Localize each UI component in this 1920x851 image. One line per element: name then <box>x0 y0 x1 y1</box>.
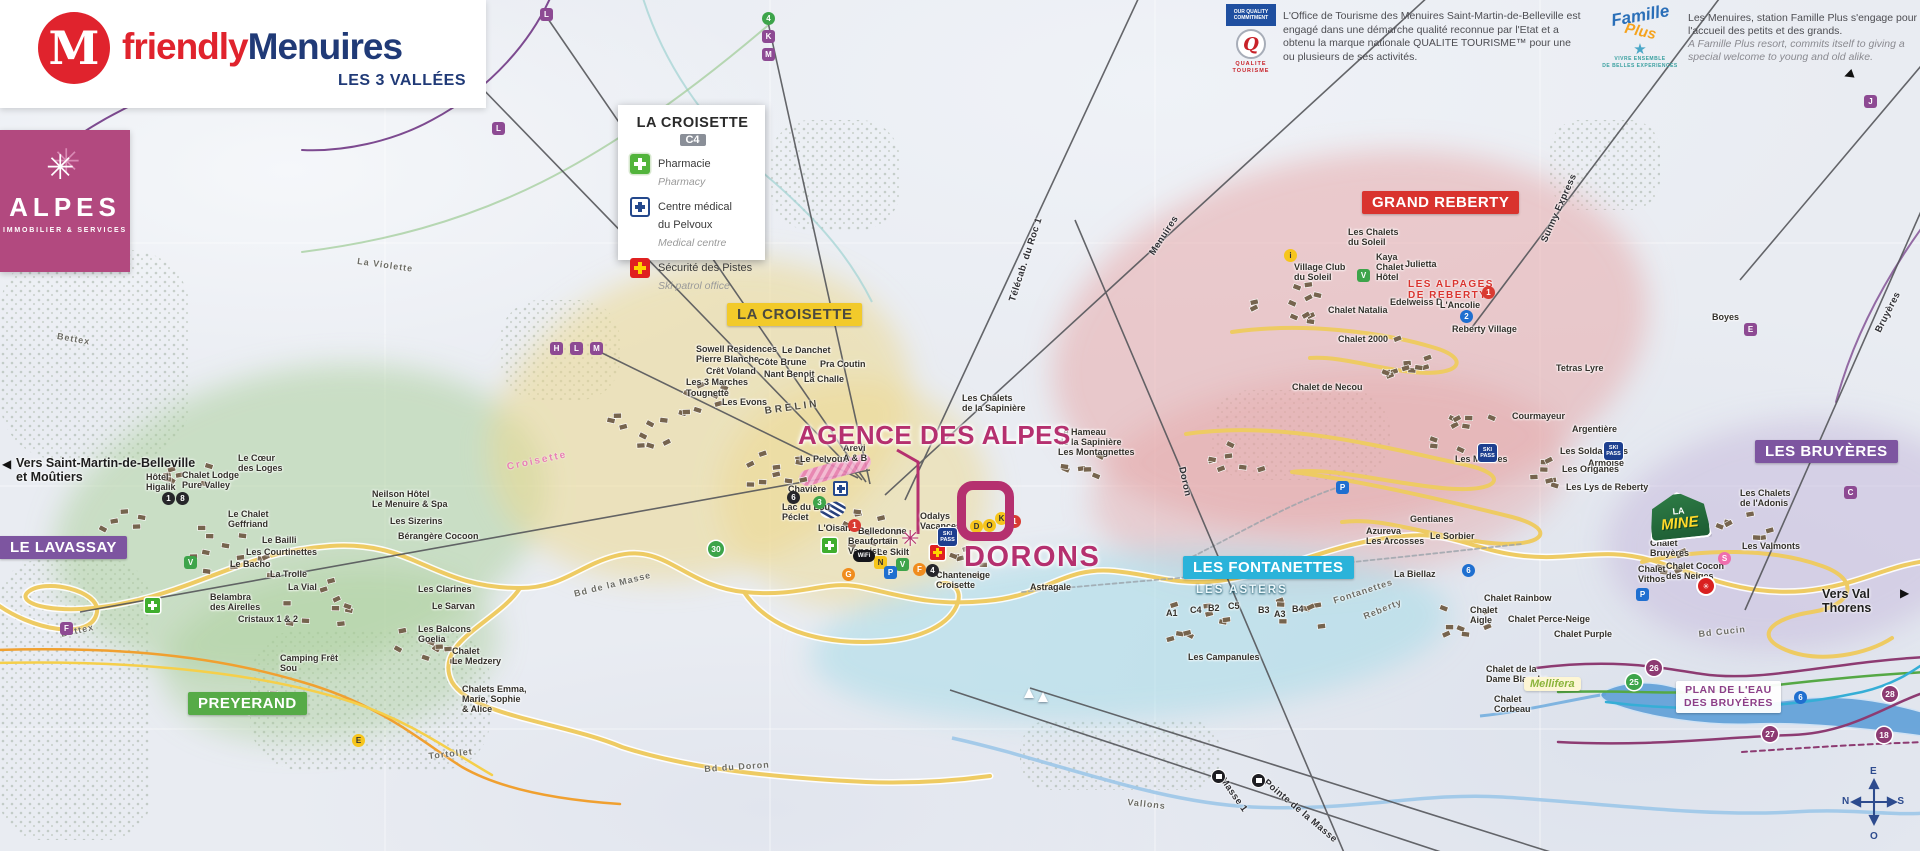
legend-label-fr: Pharmacie <box>658 158 711 170</box>
map-label: Chalet Lodge Pure Valley <box>182 470 239 490</box>
map-badge-18: 18 <box>1876 727 1892 743</box>
map-label: Chalet Natalia <box>1328 305 1388 315</box>
map-label: Le Cœur des Loges <box>238 453 283 473</box>
map-label: Tetras Lyre <box>1556 363 1604 373</box>
map-badge-j: J <box>1864 95 1877 108</box>
map-label: Chalet 2000 <box>1338 334 1388 344</box>
map-badge-28: 28 <box>1882 686 1898 702</box>
map-badge-27: 27 <box>1762 726 1778 742</box>
target-icon: ✳ <box>1698 578 1714 594</box>
map-label: C5 <box>1228 601 1240 611</box>
snowflake-marker-icon: ✳ <box>901 526 919 552</box>
brand-name: friendlyMenuires <box>122 26 402 68</box>
pharmacy-cross-icon <box>630 154 650 174</box>
map-label: Bettex <box>56 331 91 347</box>
compass-west: O <box>1870 831 1878 842</box>
ski-res ort-map: ◀Vers Saint-Martin-de-Belleville et Moût… <box>0 0 1920 851</box>
map-label: Les Evons <box>722 397 767 407</box>
map-badge-3: 3 <box>813 496 826 509</box>
skipass-icon: SKI PASS <box>938 528 957 546</box>
legend-label-en: Ski patrol office <box>658 280 730 292</box>
map-label: Bérangère Cocoon <box>398 531 479 541</box>
map-badge-6: 6 <box>1462 564 1475 577</box>
gondola-icon <box>1252 774 1265 787</box>
map-label: Chalet Purple <box>1554 629 1612 639</box>
map-badge-f: F <box>913 563 926 576</box>
map-label: Les 3 Marches <box>686 377 748 387</box>
map-badge-v: V <box>896 558 909 571</box>
boat-icon <box>1024 688 1034 698</box>
map-label: Kaya Chalet Hôtel <box>1376 252 1404 282</box>
map-label: Fontanettes <box>1332 577 1394 606</box>
ski-patrol-cross-icon <box>630 258 650 278</box>
map-badge-m: M <box>762 48 775 61</box>
map-label: Tortollet <box>428 746 473 761</box>
map-label: Le Sarvan <box>432 601 475 611</box>
map-label: Les Balcons Goelia <box>418 624 471 644</box>
map-label: Le Bacho <box>230 559 271 569</box>
famille-plus-text-en: A Famille Plus resort, commits itself to… <box>1688 38 1905 63</box>
map-badge-8: 8 <box>176 492 189 505</box>
famille-plus-text-fr: Les Menuires, station Famille Plus s'eng… <box>1688 12 1917 37</box>
map-label: Julietta <box>1405 259 1437 269</box>
map-label: Les Courtinettes <box>246 547 317 557</box>
map-badge-4: 4 <box>926 564 939 577</box>
zone-badge-le-lavassay: LE LAVASSAY <box>0 536 127 559</box>
map-label: B2 <box>1208 603 1220 613</box>
brand-name-menuires: Menuires <box>248 26 402 67</box>
legend-label-en: Pharmacy <box>658 176 705 188</box>
map-label: Les Lys de Reberty <box>1566 482 1648 492</box>
map-label: ◀ <box>1842 67 1855 83</box>
map-label: Les Origanes <box>1562 464 1619 474</box>
map-label: Pra Coutin <box>820 359 866 369</box>
map-label: Les Valmonts <box>1742 541 1800 551</box>
cross-patrol-icon <box>930 545 945 560</box>
map-badge-6: 6 <box>1794 691 1807 704</box>
map-label: Cristaux 1 & 2 <box>238 614 298 624</box>
qualite-tourisme-logo: OUR QUALITY COMMITMENT Q QUALITE TOURISM… <box>1225 4 1277 82</box>
map-badge-25: 25 <box>1626 674 1642 690</box>
skipass-icon: SKI PASS <box>1604 442 1623 460</box>
map-label: Argentière <box>1572 424 1617 434</box>
qualite-tourisme-icon: Q <box>1236 29 1266 59</box>
map-label: La Vial <box>288 582 317 592</box>
map-label: Astragale <box>1030 582 1071 592</box>
zone-badge-les-bruyeres: LES BRUYÈRES <box>1755 440 1898 463</box>
legend-grid-ref: C4 <box>680 134 706 146</box>
alpes-title: ALPES <box>9 192 121 223</box>
map-label: Télécab. du Roc 1 <box>1008 217 1045 304</box>
map-label: Reberty <box>1362 597 1403 622</box>
map-label: Camping Frêt Sou <box>280 653 338 673</box>
famille-plus-text: Les Menuires, station Famille Plus s'eng… <box>1688 12 1920 65</box>
qualite-tourisme-text: L'Office de Tourisme des Menuires Saint-… <box>1283 10 1583 65</box>
zone-badge-preyerand: PREYERAND <box>188 692 307 715</box>
cross-green-icon <box>822 538 837 553</box>
map-label: Sunny Express <box>1540 173 1580 245</box>
map-label: Edelweiss D <box>1390 297 1443 307</box>
map-label: Le Danchet <box>782 345 831 355</box>
map-label: C4 <box>1190 605 1202 615</box>
map-badge-h: H <box>550 342 563 355</box>
map-badge-4: 4 <box>762 12 775 25</box>
map-badge-p: P <box>884 566 897 579</box>
map-label: Le Sorbier <box>1430 531 1475 541</box>
map-label: Boyes <box>1712 312 1739 322</box>
map-label: B3 <box>1258 605 1270 615</box>
map-label: Chalet Le Medzery <box>452 646 501 666</box>
map-label: Le Pelvoux <box>800 454 848 464</box>
map-label: Courmayeur <box>1512 411 1565 421</box>
zone-badge-la-croisette: LA CROISETTE <box>727 303 862 326</box>
map-label: Les Sizerins <box>390 516 443 526</box>
brand-subtitle: LES 3 VALLÉES <box>338 72 466 90</box>
map-label: Le Bailli <box>262 535 297 545</box>
cross-green-icon <box>145 598 160 613</box>
legend-label-fr: Sécurité des Pistes <box>658 262 752 274</box>
map-label: ▶ <box>1900 587 1909 600</box>
wifi-icon: WiFi <box>853 550 875 562</box>
map-label: BRELIN <box>764 398 820 417</box>
map-label: Vallons <box>1127 797 1166 811</box>
map-label: La Trolle <box>270 569 307 579</box>
agency-location-marker <box>957 481 1014 541</box>
map-badge-1: 1 <box>848 519 861 532</box>
map-badge-i: i <box>1284 249 1297 262</box>
map-label: Village Club du Soleil <box>1294 262 1345 282</box>
map-badge-26: 26 <box>1646 660 1662 676</box>
medical-cross-icon <box>630 197 650 217</box>
map-badge-f: F <box>60 622 73 635</box>
quality-commitment-badge: OUR QUALITY COMMITMENT <box>1226 4 1276 26</box>
zone-badge-plan-de-leau: PLAN DE L'EAU DES BRUYÈRES <box>1676 681 1781 713</box>
map-label: Bruyères <box>1874 290 1904 334</box>
map-label: Les Clarines <box>418 584 472 594</box>
map-label: Menuires <box>1148 214 1181 257</box>
compass-rose: E N S O <box>1842 766 1906 842</box>
map-badge-v: V <box>1357 269 1370 282</box>
map-label: La Biellaz <box>1394 569 1436 579</box>
brand-monogram-icon: M <box>49 25 100 71</box>
map-label: Chalet Aigle <box>1470 605 1498 625</box>
alpes-star-icon: ✳ ✳ <box>42 140 88 186</box>
map-badge-s: S <box>1718 552 1731 565</box>
map-label: L'Ancolie <box>1440 300 1480 310</box>
map-label: Croisette <box>506 449 568 473</box>
map-label: Azureva Les Arcosses <box>1366 526 1424 546</box>
skipass-icon: SKI PASS <box>1478 444 1497 462</box>
famille-plus-logo: Famille Plus ★ VIVRE ENSEMBLE DE BELLES … <box>1596 6 1684 70</box>
legend-title: LA CROISETTE <box>630 115 755 131</box>
famille-plus-star-icon: ★ <box>1596 44 1684 56</box>
map-label: Le Chalet Geffriand <box>228 509 269 529</box>
gondola-icon <box>1212 770 1225 783</box>
map-label: Doron <box>1176 466 1193 498</box>
legend-item-medical-centre: Centre médical du Pelvoux Medical centre <box>630 197 755 251</box>
map-badge-30: 30 <box>708 541 724 557</box>
alpes-subtitle: IMMOBILIER & SERVICES <box>3 227 127 234</box>
map-badge-p: P <box>1636 588 1649 601</box>
brand-header: M friendlyMenuires LES 3 VALLÉES <box>0 0 486 108</box>
cross-blue-icon <box>833 481 848 496</box>
la-mine-main: MINE <box>1660 514 1699 533</box>
map-label: La Challe <box>804 374 844 384</box>
legend-item-pharmacy: Pharmacie Pharmacy <box>630 154 755 190</box>
mellifera-logo: Mellifera <box>1524 677 1581 691</box>
famille-plus-slogan: VIVRE ENSEMBLE DE BELLES EXPERIENCES <box>1596 56 1684 70</box>
legend-label-en: Medical centre <box>658 237 726 249</box>
map-badge-6: 6 <box>787 491 800 504</box>
map-label: Chalet de Necou <box>1292 382 1363 392</box>
zone-badge-grand-reberty: GRAND REBERTY <box>1362 191 1519 214</box>
compass-arrows-icon <box>1848 776 1900 828</box>
map-badge-p: P <box>1336 481 1349 494</box>
map-label: Pointe de la Masse <box>1261 778 1338 845</box>
map-badge-k: K <box>762 30 775 43</box>
map-label: Crêt Voland <box>706 366 756 376</box>
map-label: B4 <box>1292 604 1304 614</box>
map-legend: LA CROISETTE C4 Pharmacie Pharmacy Centr… <box>618 105 765 260</box>
map-badge-l: L <box>492 122 505 135</box>
map-badge-v: V <box>184 556 197 569</box>
alpes-agency-logo: ✳ ✳ ALPES IMMOBILIER & SERVICES <box>0 130 130 272</box>
district-annotation-dorons: DORONS <box>964 541 1100 574</box>
brand-name-friendly: friendly <box>122 26 248 67</box>
map-label: Belambra des Airelles <box>210 592 260 612</box>
map-label: Chalet Rainbow <box>1484 593 1552 603</box>
map-label: Reberty Village <box>1452 324 1517 334</box>
map-label: Les Chalets de la Sapinière <box>962 393 1026 413</box>
legend-label-fr: Centre médical du Pelvoux <box>658 201 732 231</box>
map-label: Bd Cucin <box>1698 624 1746 639</box>
qualite-tourisme-caption: QUALITE TOURISME <box>1225 61 1277 75</box>
map-label: Bd du Doron <box>704 759 770 774</box>
map-label: A1 <box>1166 608 1178 618</box>
map-label: LES ASTERS <box>1196 584 1288 597</box>
zone-badge-les-fontanettes: LES FONTANETTES <box>1183 556 1354 579</box>
map-badge-e: E <box>1744 323 1757 336</box>
map-label: Hôtel Higalik <box>146 472 176 492</box>
map-label: La Violette <box>357 256 414 274</box>
legend-item-ski-patrol: Sécurité des Pistes Ski patrol office <box>630 258 755 294</box>
boat-icon <box>1038 692 1048 702</box>
map-label: Gentianes <box>1410 514 1454 524</box>
map-label: Chalet Corbeau <box>1494 694 1531 714</box>
brand-logo: M <box>38 12 110 84</box>
map-label: Bd de la Masse <box>573 570 652 599</box>
agency-annotation-title: AGENCE DES ALPES <box>798 420 1071 451</box>
map-label: A3 <box>1274 609 1286 619</box>
map-badge-1: 1 <box>162 492 175 505</box>
map-badge-2: 2 <box>1460 310 1473 323</box>
map-badge-l: L <box>540 8 553 21</box>
map-label: Chalet Perce-Neige <box>1508 614 1590 624</box>
map-label: Les Chalets du Soleil <box>1348 227 1399 247</box>
map-badge-e: E <box>352 734 365 747</box>
map-badge-c: C <box>1844 486 1857 499</box>
map-label: Les Chalets de l'Adonis <box>1740 488 1791 508</box>
map-label: Neilson Hôtel Le Menuire & Spa <box>372 489 448 509</box>
map-label: Chalets Emma, Marie, Sophie & Alice <box>462 684 527 714</box>
map-badge-l: L <box>570 342 583 355</box>
map-label: Les Campanules <box>1188 652 1260 662</box>
map-label: Chalet Cocon des Neiges <box>1666 561 1724 581</box>
map-label: Chalet Vithos <box>1638 564 1666 584</box>
map-badge-g: G <box>842 568 855 581</box>
map-label: Côte Brune <box>758 357 807 367</box>
map-badge-1: 1 <box>1482 286 1495 299</box>
map-label: ◀ <box>2 458 11 471</box>
map-label: Belledonne <box>858 526 907 536</box>
map-badge-m: M <box>590 342 603 355</box>
